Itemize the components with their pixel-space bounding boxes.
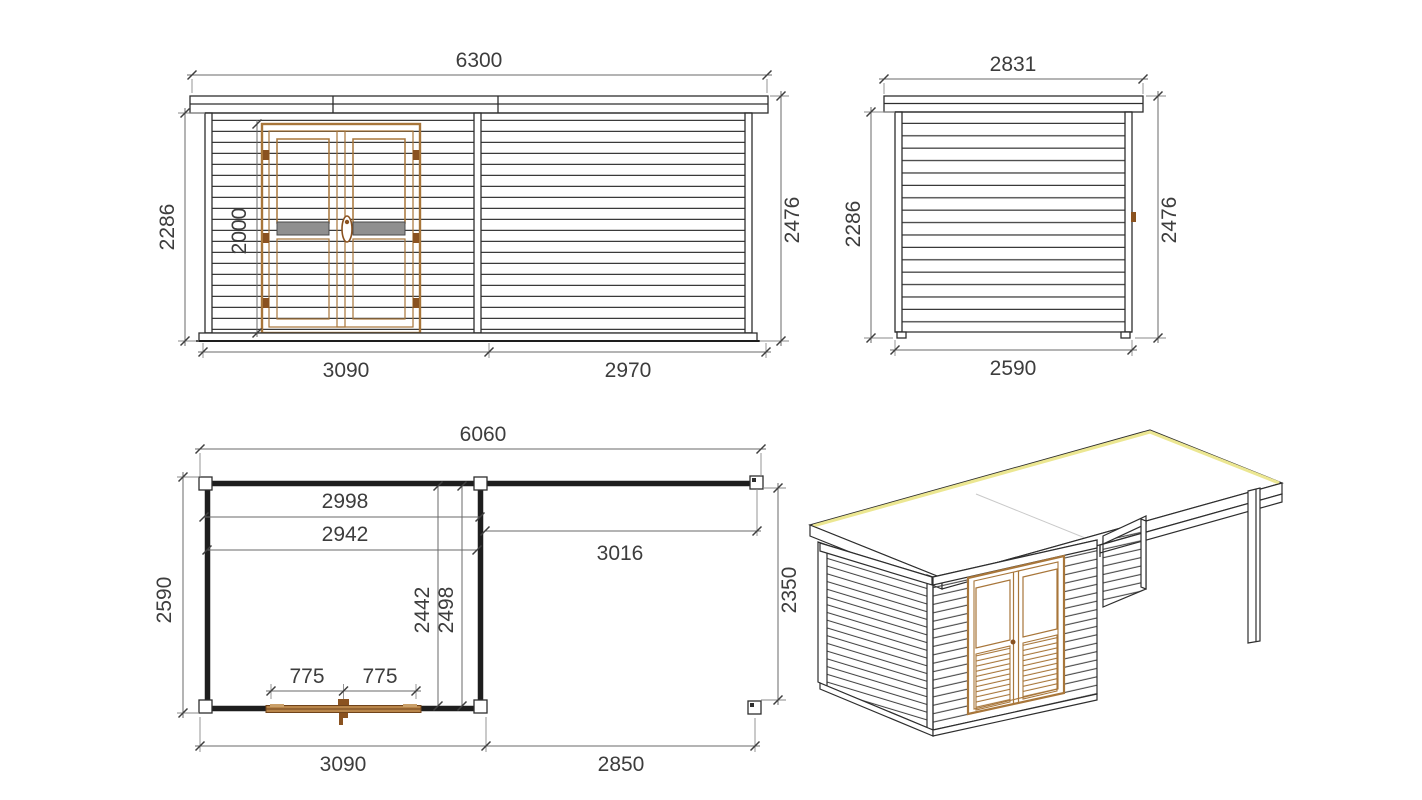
dim-front-total-height: 2476 [759, 91, 804, 346]
drawing-canvas: 6300 2286 2000 2476 [0, 0, 1422, 800]
dim-label: 2590 [990, 357, 1037, 380]
side-roof [884, 96, 1143, 112]
dim-plan-bottom-widths: 3090 2850 [195, 717, 760, 776]
post-mark [750, 703, 754, 707]
dim-label: 2476 [781, 197, 804, 244]
isometric-view [810, 430, 1282, 736]
dim-side-wall-height: 2286 [842, 107, 895, 343]
plan-door-handle [339, 713, 348, 725]
door-handle-side-mark [1131, 212, 1136, 222]
dim-plan-cabin-inner-width: 2942 [203, 523, 482, 555]
door-handle [342, 216, 352, 242]
dim-label: 2476 [1158, 197, 1181, 244]
iso-door-louvers-left [976, 646, 1010, 710]
dim-plan-depth: 2590 [153, 472, 199, 718]
dim-plan-cabin-depth-incl-wall: 2498 [435, 482, 467, 711]
dim-front-wall-height: 2286 [156, 108, 205, 346]
floor-plan-view: 6060 2998 2942 3016 2442 [153, 423, 801, 776]
dim-front-overall-width: 6300 [187, 49, 772, 93]
iso-double-door [968, 556, 1064, 714]
dim-label: 2970 [605, 359, 652, 382]
dim-label: 3090 [323, 359, 370, 382]
iso-canopy-post [1248, 488, 1260, 643]
iso-corner-trim-left [818, 542, 827, 686]
dim-label: 2000 [228, 208, 251, 255]
iso-door-louvers-right [1023, 635, 1057, 699]
front-elevation-view: 6300 2286 2000 2476 [156, 49, 804, 382]
dim-label: 3016 [597, 542, 644, 565]
dim-label: 2286 [842, 201, 865, 248]
front-roof [190, 96, 768, 113]
technical-drawing-sheet: 6300 2286 2000 2476 [0, 0, 1422, 800]
iso-corner-trim-front [927, 575, 933, 730]
dim-side-total-height: 2476 [1135, 91, 1181, 343]
dim-label: 6060 [460, 423, 507, 446]
dim-plan-cabin-width-incl-wall: 2998 [200, 490, 485, 522]
dim-label: 2998 [322, 490, 369, 513]
dim-side-base-depth: 2590 [890, 340, 1137, 380]
dim-plan-overall-width: 6060 [195, 423, 766, 477]
dim-label: 775 [362, 665, 397, 688]
dim-label: 6300 [456, 49, 503, 72]
iso-door-handle [1011, 640, 1016, 645]
dim-plan-canopy-depth: 2350 [761, 483, 801, 705]
side-base-feet [897, 332, 1130, 338]
dim-label: 3090 [320, 753, 367, 776]
side-wall [895, 112, 1136, 332]
dim-side-roof-depth: 2831 [879, 53, 1148, 94]
dim-front-bottom-widths: 3090 2970 [198, 343, 771, 382]
dim-label: 775 [289, 665, 324, 688]
dim-label: 2831 [990, 53, 1037, 76]
iso-door-window-right [1023, 569, 1057, 637]
post-mark [752, 478, 756, 482]
dim-label: 2442 [411, 587, 434, 634]
dim-label: 2942 [322, 523, 369, 546]
dim-label: 2350 [778, 567, 801, 614]
dim-plan-canopy-inner-width: 3016 [481, 489, 762, 565]
iso-door-window-left [976, 580, 1010, 648]
side-elevation-view: 2831 2286 2476 2590 [842, 53, 1181, 380]
plan-door-swing [266, 699, 421, 725]
dim-label: 2286 [156, 204, 179, 251]
dim-label: 2850 [598, 753, 645, 776]
dim-plan-door-leaves: 775 775 [266, 665, 421, 699]
dim-label: 2498 [435, 587, 458, 634]
dim-label: 2590 [153, 577, 176, 624]
front-base [196, 333, 760, 341]
